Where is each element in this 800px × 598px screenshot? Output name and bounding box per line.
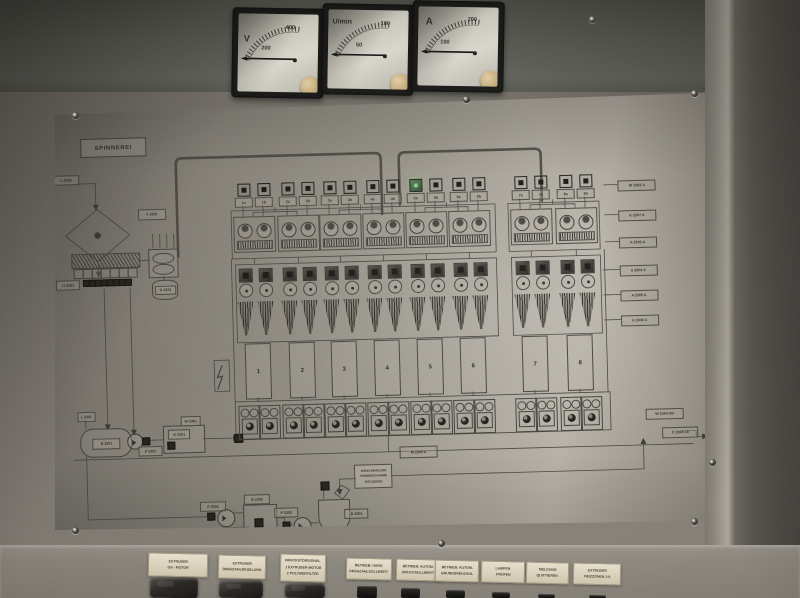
mounting-screw xyxy=(589,16,596,23)
pressure-indicator xyxy=(239,268,253,282)
heating-zone-box xyxy=(128,268,138,278)
right-tag-3-label: A 2304 A xyxy=(631,268,646,272)
position-indicator-tag: 3a xyxy=(321,195,339,205)
process-note-line: WENN BEHÄLTER xyxy=(360,469,386,472)
position-indicator-5b xyxy=(429,178,442,191)
position-indicator-tag-label: 8a xyxy=(564,192,568,196)
tag-corner-1-label: C 2306 18 xyxy=(672,430,689,434)
right-tag-1-label: K 2307 A xyxy=(630,213,645,217)
tag-tank-top: L 2301 xyxy=(77,412,95,422)
control-label-line: PRÜFEN xyxy=(496,573,510,577)
position-indicator-tag-label: 1a xyxy=(242,201,246,205)
tag-filter: F 2301 xyxy=(138,209,166,221)
position-indicator-tag: 7a xyxy=(512,190,530,200)
push-button-1[interactable] xyxy=(401,588,420,598)
mounting-screw xyxy=(709,459,716,466)
pump-3-symbol xyxy=(293,517,311,535)
pump-heater-bar xyxy=(323,238,359,248)
tag-winder-drive-label: M 2303 A xyxy=(411,450,427,454)
tag-pump-2-sub-label: K 2302 xyxy=(230,530,242,534)
right-tag-1: K 2307 A xyxy=(618,209,656,221)
position-indicator-tag: 2b xyxy=(299,196,317,206)
pressure-indicator xyxy=(560,260,574,274)
control-label-card-2: DRUCKSTÖRSIGNAL1 EXTRUDER-MOTOR2 POLYMER… xyxy=(280,553,327,582)
control-label-card-6: LAMPENPRÜFEN xyxy=(481,561,525,584)
control-cabinet-photo: V 200 400 U/min 50 100 xyxy=(0,0,800,598)
position-indicator-tag-label: 3a xyxy=(328,198,332,202)
tag-pump-3-label: P 2303 xyxy=(280,511,292,515)
tag-inlet: L 2302 xyxy=(53,175,79,186)
pressure-indicator xyxy=(303,267,317,281)
winder-unit xyxy=(387,401,410,436)
control-label-card-3: BETRIEB: HANDDREHZAHLSOLLWERT xyxy=(346,557,392,580)
polymer-tank-symbol: B 2301 xyxy=(80,428,133,458)
pump-2-status xyxy=(207,513,215,521)
position-indicator-tag: 5b xyxy=(427,192,445,202)
panel-content: SPINNEREI L 2302 F 2301 H 2301 G 2301 L … xyxy=(49,86,711,551)
static-mixer-symbol xyxy=(148,248,179,278)
control-label-line: DRUCKSOLLWERT xyxy=(402,571,434,575)
position-indicator-tag-label: 1b xyxy=(262,200,266,204)
vessel-k-status xyxy=(167,442,175,450)
position-indicator-tag: 1a xyxy=(235,197,253,207)
position-indicator-7b xyxy=(534,175,547,188)
pump-heater-bar xyxy=(514,232,550,242)
pump-heater-bar xyxy=(366,236,402,246)
position-indicator-tag-label: 5a xyxy=(414,196,418,200)
control-label-line: HEIZZONEN 1-8 xyxy=(584,575,610,579)
tag-heater: H 2301 xyxy=(56,280,80,291)
winder-unit xyxy=(344,402,367,437)
position-indicator-tag: 6b xyxy=(470,191,488,201)
tag-winder-drive: M 2303 A xyxy=(399,445,437,458)
position-indicator-tag-label: 2b xyxy=(306,199,310,203)
control-label-line: LAMPEN xyxy=(496,567,511,571)
winder-unit xyxy=(535,397,558,432)
pump-heater-bar xyxy=(452,234,488,244)
spinning-position: 5 xyxy=(417,338,445,395)
push-button-3[interactable] xyxy=(492,592,510,598)
process-note-line: PROBEENTNAHME xyxy=(360,475,387,478)
pressure-indicator xyxy=(388,264,402,278)
spinning-position-number: 6 xyxy=(472,362,475,368)
control-label-line: EXTRUDER xyxy=(232,562,251,566)
control-label-line: GRUNDDREHZAHL xyxy=(441,572,473,576)
mounting-screw xyxy=(463,96,470,103)
pressure-indicator xyxy=(431,263,445,277)
vessel-b2-symbol xyxy=(243,504,278,535)
right-tag-0-label: W 2302 A xyxy=(628,183,644,187)
position-indicator-6a xyxy=(452,178,465,191)
position-indicator-tag-label: 8b xyxy=(583,192,587,196)
spinning-position-number: 2 xyxy=(301,367,304,373)
spinning-position-number: 8 xyxy=(579,360,582,366)
position-indicator-tag-label: 4a xyxy=(371,197,375,201)
lightning-icon xyxy=(217,365,223,389)
pressure-indicator xyxy=(411,264,425,278)
tag-pump-tank: P 2301 xyxy=(138,446,162,457)
spinning-position-number: 4 xyxy=(386,365,389,371)
control-label-card-7: MELDUNGQUITTIEREN xyxy=(526,562,569,585)
tag-pump-tank-label: P 2301 xyxy=(145,449,157,453)
tag-vessel-k: K 2301 xyxy=(168,429,190,440)
tag-vessel-w-label: W 2301 xyxy=(184,419,197,423)
tag-corner-1: C 2306 18 xyxy=(662,426,698,438)
pressure-indicator xyxy=(283,267,297,281)
control-label-line: DREHZAHLSOLLWERT xyxy=(350,570,389,574)
pressure-indicator xyxy=(345,266,359,280)
position-indicator-tag: 1b xyxy=(255,197,273,207)
tag-pump-3: P 2303 xyxy=(274,507,298,518)
mixer-element xyxy=(152,264,174,276)
mimic-panel: SPINNEREI L 2302 F 2301 H 2301 G 2301 L … xyxy=(55,93,705,545)
position-indicator-tag: 3b xyxy=(341,195,359,205)
spinning-position-number: 7 xyxy=(534,361,537,367)
push-button-0[interactable] xyxy=(357,586,377,598)
right-tag-5-label: A 2306 A xyxy=(633,318,648,322)
position-indicator-tag: 6a xyxy=(450,192,468,202)
tag-pump-2-sub: K 2302 xyxy=(223,527,249,538)
mounting-screw xyxy=(72,112,79,119)
vessel-b3-status xyxy=(320,481,329,490)
position-indicator-3a xyxy=(323,181,336,194)
control-label-line: MELDUNG xyxy=(539,568,557,572)
right-tag-2-label: A 2303 A xyxy=(630,240,645,244)
right-tag-4-label: A 2305 A xyxy=(632,293,647,297)
position-indicator-tag-label: 6b xyxy=(477,194,481,198)
control-label-line: QUITTIEREN xyxy=(537,574,558,578)
control-label-line: BETRIEB: AUTOM. xyxy=(402,565,433,569)
pressure-indicator xyxy=(368,265,382,279)
position-indicator-5a xyxy=(409,179,422,192)
spinning-position: 8 xyxy=(567,334,595,391)
tag-vessel-b3: B 2303 xyxy=(344,508,368,519)
position-indicator-7a xyxy=(514,176,527,189)
position-indicator-8b xyxy=(579,174,592,187)
tag-mixer: G 2301 xyxy=(155,286,176,296)
control-label-line: EXTRUDER xyxy=(168,560,187,564)
ammeter-face: A 100 200 xyxy=(417,6,498,86)
control-label-line: BETRIEB: HAND xyxy=(355,564,383,568)
position-indicator-tag: 5a xyxy=(407,193,425,203)
spinning-position: 2 xyxy=(289,342,317,399)
pump-heater-bar xyxy=(559,231,595,241)
cylinder-symbol: G 2301 xyxy=(152,279,179,300)
winder-unit xyxy=(258,405,281,440)
right-tag-0: W 2302 A xyxy=(617,180,655,192)
pressure-indicator xyxy=(474,262,488,276)
control-label-line: 1 EXTRUDER-MOTOR xyxy=(285,566,321,570)
control-label-line: DRUCKSTÖRSIGNAL xyxy=(285,560,321,564)
pressure-indicator xyxy=(454,263,468,277)
winder-unit xyxy=(302,404,325,439)
control-label-line: DREHZAHLREGELUNG xyxy=(222,568,261,572)
tag-tank: B 2301 xyxy=(92,438,120,450)
spinning-position-number: 5 xyxy=(429,364,432,370)
position-indicator-tag: 7b xyxy=(532,189,550,199)
mounting-screw xyxy=(691,518,698,525)
position-indicator-tag: 8a xyxy=(557,189,575,199)
winder-unit xyxy=(580,396,603,431)
pump-heater-bar xyxy=(409,235,445,245)
mixer-element xyxy=(152,253,174,265)
position-indicator-4a xyxy=(366,180,379,193)
position-indicator-3b xyxy=(343,181,356,194)
tag-heater-label: H 2301 xyxy=(62,283,74,287)
position-indicator-1b xyxy=(257,183,270,196)
pump-heater-bar xyxy=(237,240,273,250)
vessel-b2-status xyxy=(254,518,263,527)
right-tag-4: A 2305 A xyxy=(620,289,658,301)
spinning-position-number: 1 xyxy=(257,368,260,374)
control-label-card-8: EXTRUDERHEIZZONEN 1-8 xyxy=(573,562,621,585)
meter-adjust-knob[interactable] xyxy=(390,73,408,89)
tag-tank-label: B 2301 xyxy=(100,442,112,446)
tag-vessel-w: W 2301 xyxy=(181,416,201,427)
position-indicator-tag: 2a xyxy=(279,196,297,206)
pump-3-status xyxy=(282,521,290,529)
control-label-card-0: EXTRUDERGS - MOTOR xyxy=(148,552,209,577)
control-label-line: GS - MOTOR xyxy=(167,566,188,570)
position-indicator-1a xyxy=(237,183,250,196)
tank-pump-status xyxy=(142,437,150,445)
pressure-indicator xyxy=(259,268,273,282)
voltmeter: V 200 400 xyxy=(231,7,325,99)
spinning-position: 6 xyxy=(460,337,488,394)
rocker-switch-0[interactable] xyxy=(150,576,198,598)
position-indicator-tag: 8b xyxy=(577,188,595,198)
position-indicator-tag-label: 3b xyxy=(348,198,352,202)
spinning-position: 7 xyxy=(522,335,550,392)
process-note: WENN BEHÄLTER PROBEENTNAHME ENTLEEREN xyxy=(354,464,393,489)
meter-adjust-knob[interactable] xyxy=(300,76,318,92)
control-label-line: 2 POLYMERFILTER xyxy=(287,572,319,576)
pressure-indicator xyxy=(325,266,339,280)
spinning-position: 3 xyxy=(331,341,359,398)
position-indicator-tag-label: 5b xyxy=(434,196,438,200)
voltmeter-face: V 200 400 xyxy=(237,13,318,92)
winder-unit xyxy=(473,399,496,434)
control-label-card-5: BETRIEB: AUTOM.GRUNDDREHZAHL xyxy=(435,560,479,583)
control-label-line: BETRIEB: AUTOM. xyxy=(441,566,472,570)
position-indicator-tag: 4a xyxy=(364,194,382,204)
tag-tank-top-label: L 2301 xyxy=(81,415,92,419)
mounting-screw xyxy=(438,540,445,547)
position-indicator-tag: 4b xyxy=(384,193,402,203)
tag-mixer-label: G 2301 xyxy=(160,288,172,292)
tag-vessel-k-label: K 2301 xyxy=(173,432,185,436)
tag-filter-label: F 2301 xyxy=(146,213,157,217)
right-tag-3: A 2304 A xyxy=(620,264,658,276)
cabinet-right-edge xyxy=(705,0,800,598)
rpm-meter-face: U/min 50 100 xyxy=(327,9,408,89)
position-indicator-tag-label: 6a xyxy=(457,195,461,199)
tag-corner-0: W 2304 AB xyxy=(646,408,684,420)
heating-zone-status xyxy=(125,279,132,286)
process-note-line: ENTLEEREN xyxy=(364,480,382,483)
position-indicator-tag-label: 7a xyxy=(519,193,523,197)
rpm-meter: U/min 50 100 xyxy=(321,3,415,96)
spinning-position: 4 xyxy=(374,339,402,396)
rocker-switch-2[interactable] xyxy=(285,583,325,598)
pressure-indicator xyxy=(515,261,529,275)
control-label-line: EXTRUDER xyxy=(587,569,606,573)
right-tag-2: A 2303 A xyxy=(619,236,657,248)
tag-vessel-b3-label: B 2303 xyxy=(350,512,362,516)
position-indicator-8a xyxy=(559,175,572,188)
ammeter: A 100 200 xyxy=(411,0,505,93)
position-indicator-4b xyxy=(386,179,399,192)
winder-unit xyxy=(430,400,453,435)
position-indicator-2a xyxy=(281,182,294,195)
position-indicator-tag-label: 4b xyxy=(391,197,395,201)
meter-adjust-knob[interactable] xyxy=(480,70,498,86)
pump-heater-bar xyxy=(281,239,317,249)
position-indicator-tag-label: 7b xyxy=(539,193,543,197)
spinning-position: 1 xyxy=(245,343,273,400)
mounting-screw xyxy=(691,90,698,97)
pressure-indicator xyxy=(535,260,549,274)
position-indicator-tag-label: 2a xyxy=(286,200,290,204)
pressure-indicator xyxy=(580,259,594,273)
spinning-position-number: 3 xyxy=(343,366,346,372)
panel-title: SPINNEREI xyxy=(80,137,146,158)
position-indicator-6b xyxy=(472,177,485,190)
rocker-switch-1[interactable] xyxy=(219,580,263,598)
tag-pump-2-label: P 2302 xyxy=(207,505,219,509)
push-button-2[interactable] xyxy=(446,590,465,598)
tag-vessel-b2-label: B 2302 xyxy=(251,497,263,501)
tag-inlet-label: L 2302 xyxy=(60,178,71,182)
right-tag-5: A 2306 A xyxy=(621,314,659,326)
position-indicator-2b xyxy=(301,182,314,195)
control-label-card-4: BETRIEB: AUTOM.DRUCKSOLLWERT xyxy=(396,559,440,582)
tag-corner-0-label: W 2304 AB xyxy=(655,412,674,416)
push-button-4[interactable] xyxy=(538,594,555,598)
mounting-screw xyxy=(72,527,79,534)
control-label-card-1: EXTRUDERDREHZAHLREGELUNG xyxy=(218,554,267,579)
panel-title-label: SPINNEREI xyxy=(94,144,132,151)
vessel-k-symbol: K 2301 xyxy=(163,425,206,454)
